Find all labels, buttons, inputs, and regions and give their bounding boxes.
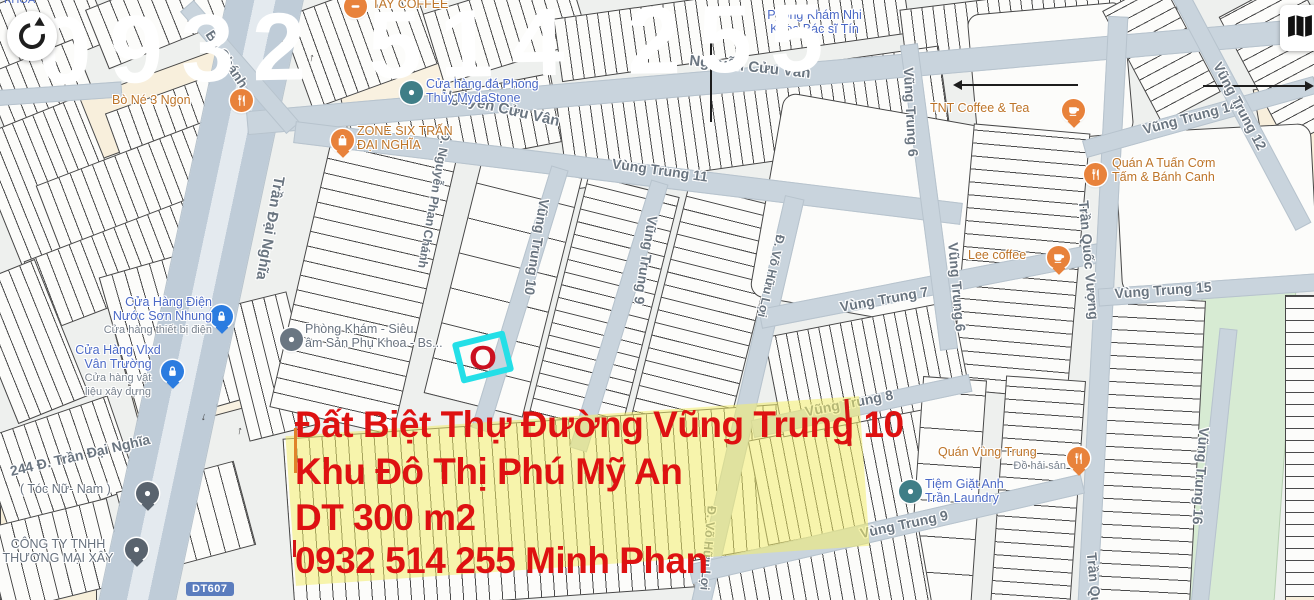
oneway-arrow-icon: ↑ xyxy=(236,425,244,438)
poi-quan-a-tuan-com-tam-label[interactable]: Quán A Tuấn CơmTấm & Bánh Canh xyxy=(1112,156,1252,184)
listing-area: DT 300 m2 xyxy=(295,497,476,539)
pin-lock-icon[interactable] xyxy=(210,305,233,328)
listing-location: Khu Đô Thị Phú Mỹ An xyxy=(295,451,682,493)
poi-cua-hang-vlxd-van-truong-label[interactable]: Cửa Hàng VlxdVân TrườngCửa hàng vậtliệu … xyxy=(48,343,188,399)
arrowhead-right-icon xyxy=(1305,81,1314,91)
poi-toc-nu-nam-label[interactable]: ( Tóc Nữ- Nam ) xyxy=(20,482,140,496)
poi-zone-six-tran-dai-nghia-label[interactable]: ZONE SIX TRẤNĐẠI NGHĨA xyxy=(357,124,517,152)
poi-phong-kham-sieu-am-label[interactable]: Phòng Khám - Siêuâm Sản Phụ Khoa - Bs... xyxy=(305,322,555,350)
circle-dot-icon[interactable] xyxy=(280,328,303,351)
listing-contact: 0932 514 255 Minh Phan xyxy=(295,540,708,582)
road-shield-dt607: DT607 xyxy=(186,582,234,596)
map-screenshot: ↓↑↓↑Nguyễn Cửu VânNguyễn Cửu VânVùng Tru… xyxy=(0,0,1314,600)
annotation-line xyxy=(958,84,1078,86)
clipped-label-fragment: KHOA xyxy=(4,0,35,6)
listing-title: Đất Biệt Thự Đường Vũng Trung 10 xyxy=(295,404,904,446)
poi-cong-ty-tnhh-thuong-mai-xay-label[interactable]: CÔNG TY TNHHTHƯƠNG MẠI XÂY xyxy=(0,537,128,565)
map-block xyxy=(1285,295,1314,597)
map-layers-button[interactable] xyxy=(1280,5,1314,51)
map-icon xyxy=(1287,14,1313,43)
refresh-button[interactable] xyxy=(7,11,57,61)
poi-cua-hang-dien-nuoc-son-nhung-label[interactable]: Cửa Hàng ĐiệnNước Sơn NhungCửa hàng thiế… xyxy=(82,295,212,337)
circle-fork-icon[interactable] xyxy=(1084,163,1107,186)
poi-lee-coffee-label[interactable]: Lee coffee xyxy=(968,248,1053,262)
pin-fork-icon[interactable] xyxy=(1067,447,1090,470)
arrowhead-left-icon xyxy=(948,80,962,90)
circle-dot-icon[interactable] xyxy=(899,480,922,503)
watermark-phone: 0932 514 255 xyxy=(37,0,842,107)
poi-tnt-coffee-tea-label[interactable]: TNT Coffee & Tea xyxy=(930,101,1065,115)
pin-coffee-icon[interactable] xyxy=(1062,99,1085,122)
marker-o-glyph: O xyxy=(469,341,497,374)
pin-bag-icon[interactable] xyxy=(331,129,354,152)
poi-tiem-giat-anh-tran-laundry-label[interactable]: Tiệm Giặt AnhTrần Laundry xyxy=(925,477,1035,505)
annotation-line xyxy=(1203,85,1309,87)
poi-quan-vung-trung-label[interactable]: Quán Vùng TrungĐồ hải sản xyxy=(938,445,1066,473)
pin-dot-icon[interactable] xyxy=(125,538,148,561)
